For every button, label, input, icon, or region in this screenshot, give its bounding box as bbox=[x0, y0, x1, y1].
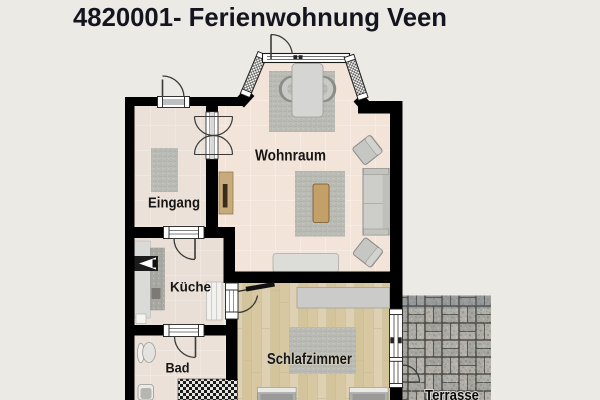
svg-text:Bad: Bad bbox=[166, 360, 190, 376]
svg-text:Küche: Küche bbox=[170, 278, 211, 294]
svg-text:Schlafzimmer: Schlafzimmer bbox=[267, 351, 352, 368]
svg-text:Terrasse: Terrasse bbox=[425, 388, 479, 400]
svg-text:Wohnraum: Wohnraum bbox=[255, 147, 326, 164]
svg-text:4820001- Ferienwohnung Veen: 4820001- Ferienwohnung Veen bbox=[73, 2, 447, 32]
svg-text:Eingang: Eingang bbox=[148, 196, 200, 212]
